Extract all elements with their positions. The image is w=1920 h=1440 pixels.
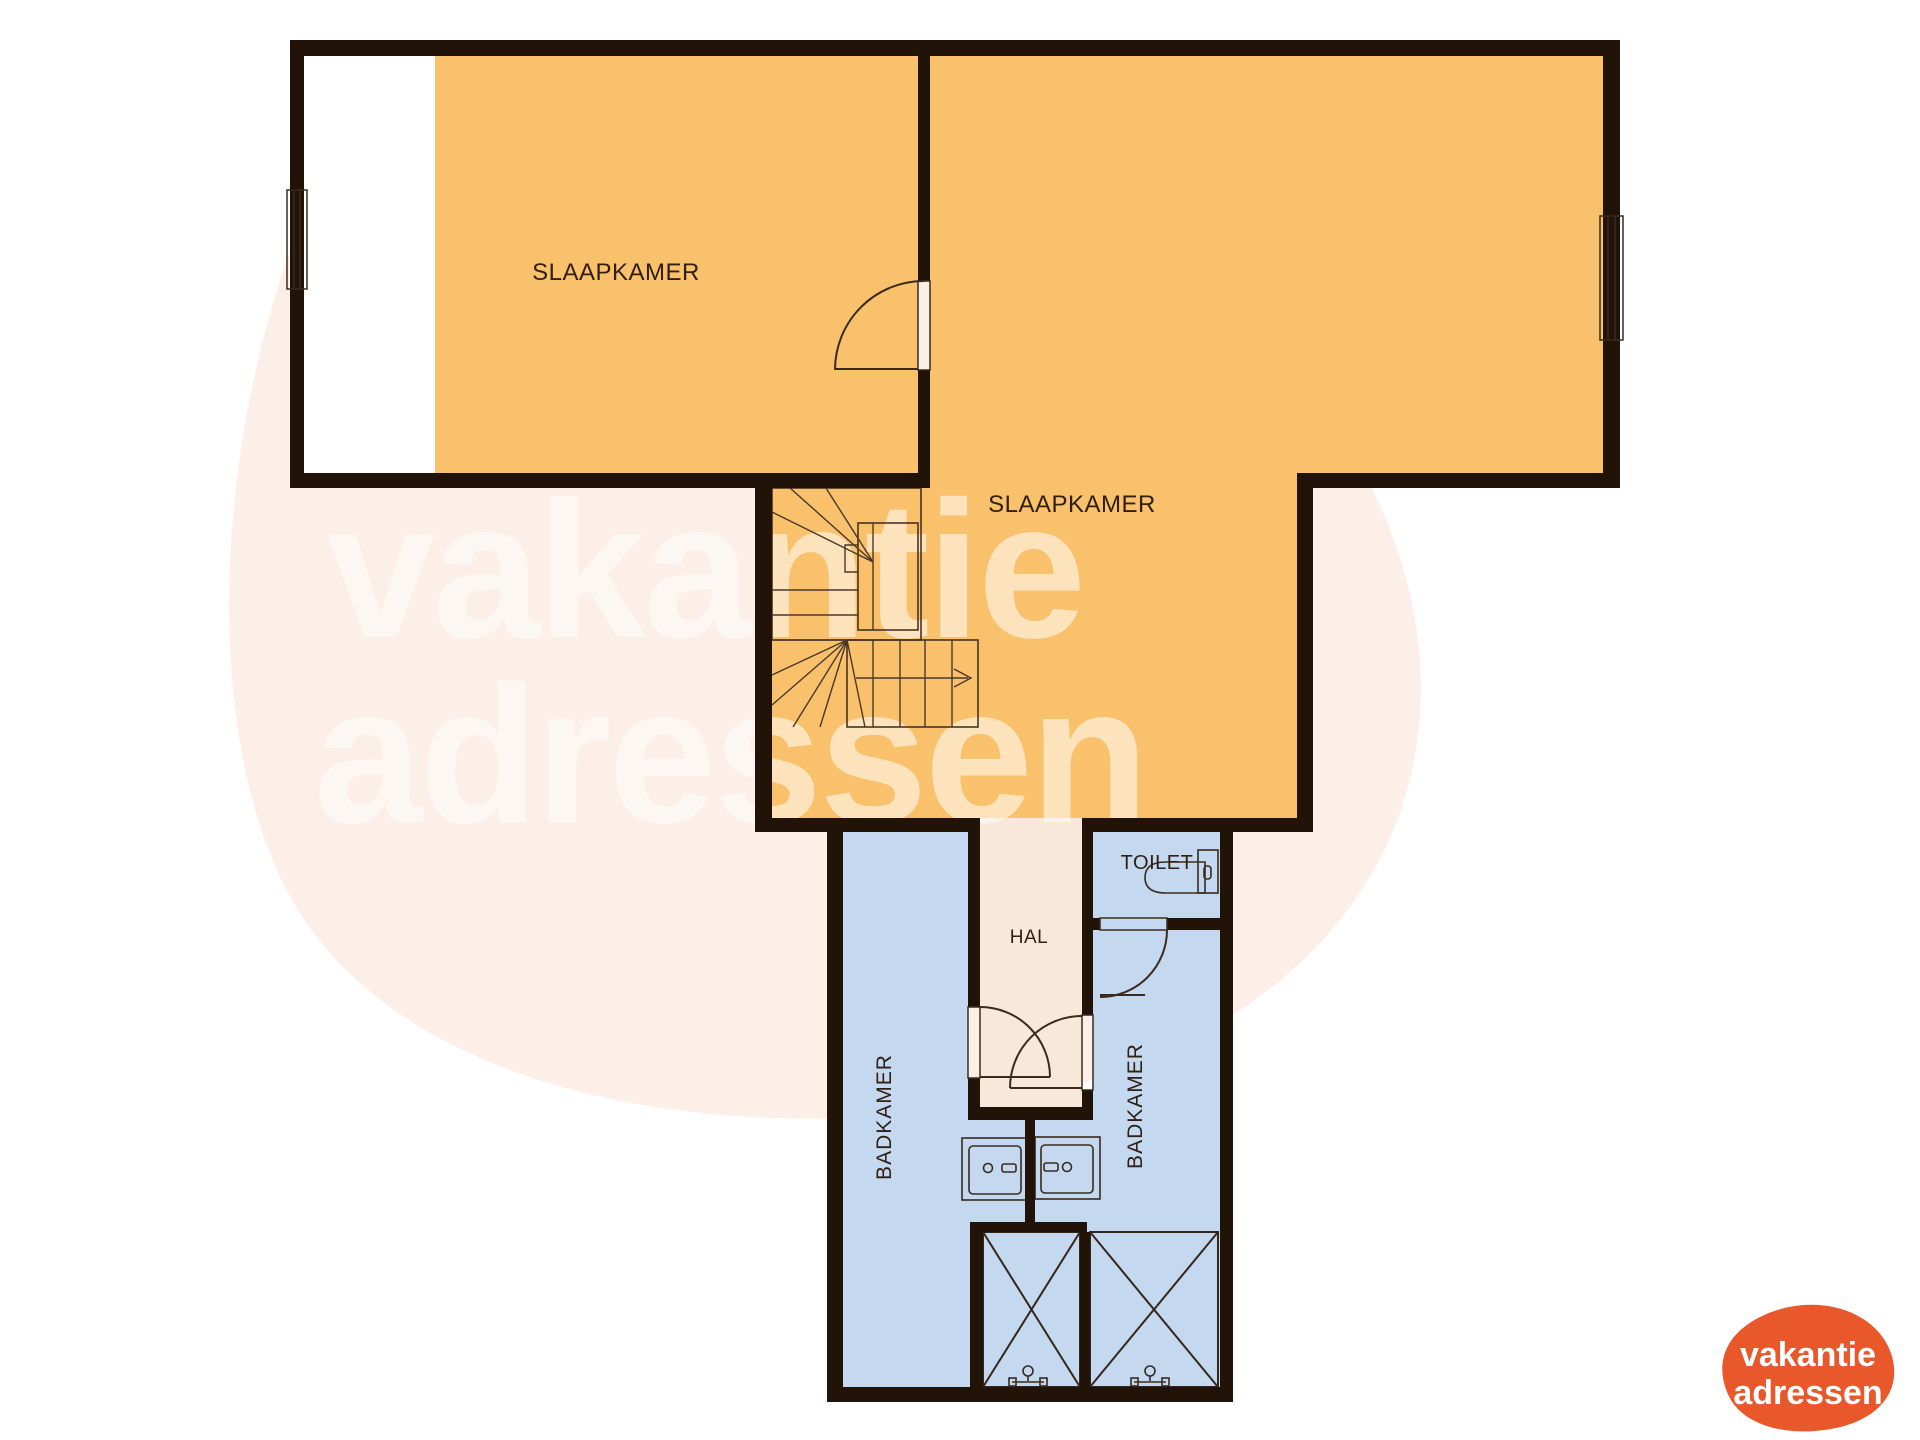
- logo-text-line-2: adressen: [1733, 1374, 1882, 1412]
- label-slaapkamer-right: SLAAPKAMER: [988, 491, 1156, 518]
- logo-text-line-1: vakantie: [1740, 1336, 1876, 1374]
- watermark: vakantie adressen: [314, 461, 1146, 864]
- label-toilet: TOILET: [1121, 852, 1194, 874]
- floorplan-svg: vakantie adressen: [0, 0, 1920, 1440]
- watermark-line-2: adressen: [314, 646, 1146, 864]
- low-headroom-area: [304, 56, 435, 473]
- room-badkamer-right-and-toilet-floor: [1093, 832, 1220, 1387]
- floorplan-page: vakantie adressen: [0, 0, 1920, 1440]
- label-slaapkamer-left: SLAAPKAMER: [532, 259, 700, 286]
- label-hal: HAL: [1010, 927, 1048, 948]
- room-badkamer-left-floor: [843, 832, 968, 1387]
- label-badkamer-right: BADKAMER: [1124, 1043, 1147, 1169]
- label-badkamer-left: BADKAMER: [873, 1054, 896, 1180]
